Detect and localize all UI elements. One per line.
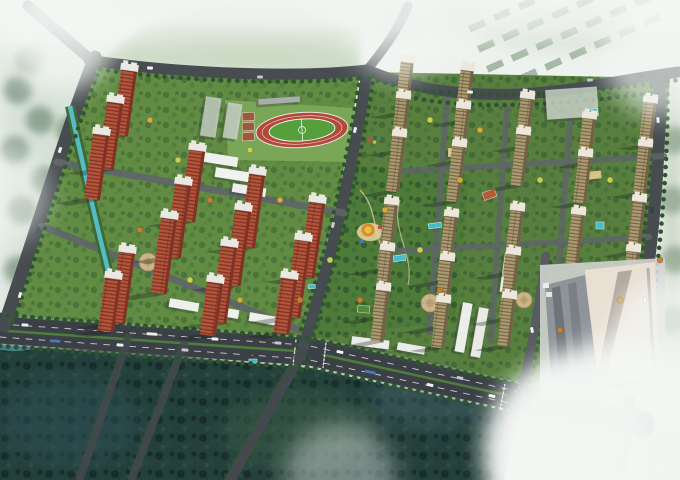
vehicle xyxy=(274,341,281,345)
accent-tree xyxy=(382,207,388,213)
accent-tree xyxy=(137,227,143,233)
vehicle xyxy=(211,337,218,341)
swimming-pool xyxy=(308,284,315,289)
vehicle xyxy=(21,323,28,327)
accent-tree xyxy=(277,197,283,203)
vehicle xyxy=(656,117,660,123)
vehicle xyxy=(181,348,188,352)
forest-blue-shade xyxy=(0,375,140,465)
play-equipment xyxy=(378,226,382,229)
vehicle xyxy=(257,75,263,78)
swimming-pool xyxy=(596,222,604,229)
vehicle xyxy=(49,339,60,343)
vehicle xyxy=(147,66,153,70)
ghost-tree xyxy=(26,106,54,134)
vehicle xyxy=(587,78,593,82)
accent-tree xyxy=(357,297,363,303)
vehicle xyxy=(86,328,93,332)
accent-tree xyxy=(175,157,181,163)
circular-plaza xyxy=(516,292,532,308)
accent-tree xyxy=(207,197,213,203)
accent-tree xyxy=(237,297,243,303)
accent-tree xyxy=(147,117,153,123)
vehicle xyxy=(467,90,473,94)
playground-ring-inner xyxy=(364,226,371,233)
accent-tree xyxy=(657,257,663,263)
sport-court xyxy=(357,305,370,313)
aerial-rendering-canvas: Aerial bird's-eye architectural renderin… xyxy=(0,0,680,480)
vehicle xyxy=(116,343,123,347)
vehicle xyxy=(146,332,157,336)
vehicle xyxy=(650,207,654,213)
accent-tree xyxy=(427,117,433,123)
accent-tree xyxy=(457,177,463,183)
accent-tree xyxy=(617,297,623,303)
rendering-svg xyxy=(0,0,680,480)
accent-tree xyxy=(297,297,303,303)
accent-tree xyxy=(327,257,333,263)
accent-tree xyxy=(437,287,443,293)
mall-crown-notch xyxy=(543,283,549,288)
accent-tree xyxy=(187,277,193,283)
sport-court xyxy=(242,132,255,141)
sport-court xyxy=(242,122,255,131)
accent-tree xyxy=(477,127,483,133)
accent-tree xyxy=(607,177,613,183)
vehicle xyxy=(244,352,251,356)
mall-crown-notch xyxy=(546,292,552,297)
sport-court xyxy=(242,112,255,121)
accent-tree xyxy=(537,177,543,183)
accent-tree xyxy=(417,247,423,253)
accent-tree xyxy=(247,147,253,153)
accent-tree xyxy=(557,327,563,333)
play-equipment xyxy=(360,240,364,243)
